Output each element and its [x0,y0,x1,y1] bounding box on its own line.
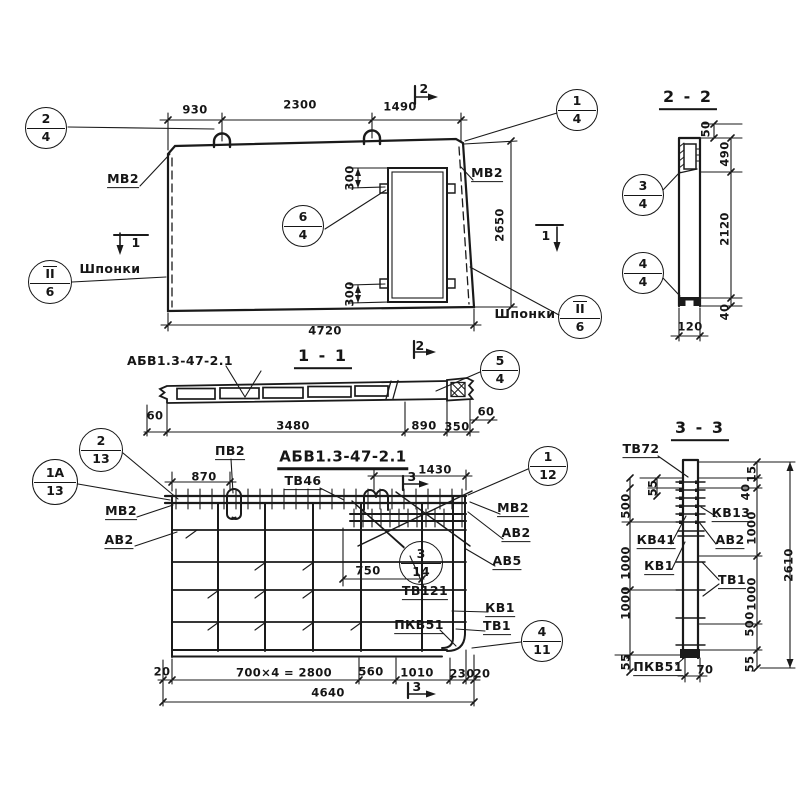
dim-55-bottom-right: 55 [744,656,757,673]
dim-1000-right-a: 1000 [746,511,759,545]
callout-1a-13: 1А13 [32,459,78,505]
callout-top: II [573,301,586,316]
dim-500-right: 500 [744,611,757,636]
callout-bottom: 14 [412,566,429,579]
dim-750: 750 [355,565,380,578]
dim-40-right: 40 [740,484,753,501]
section-mark-2-side: 2 [415,339,424,353]
dim-2120: 2120 [719,212,732,246]
dim-60-right: 60 [478,406,495,419]
label-panel-mark: АБВ1.3-47-2.1 [127,354,233,368]
callout-top: 3 [639,180,648,193]
label-pv2: ПВ2 [215,444,245,460]
callout-bottom: 12 [539,469,556,482]
callout-bottom: 4 [299,229,308,242]
section-mark-1-right: 1 [541,229,550,243]
callout-top: 1А [46,467,64,480]
label-shponki-left: Шпонки [80,262,141,276]
callout-bottom: 4 [639,198,648,211]
section-mark-2-top: 2 [419,82,428,96]
callout-top: 4 [639,258,648,271]
dim-490: 490 [719,141,732,166]
callout-2-4: 24 [25,107,67,149]
dim-1000-right-b: 1000 [746,577,759,611]
callout-bottom: 11 [533,644,550,657]
title-rebar-plan: АБВ1.3-47-2.1 [277,448,408,470]
dim-20-right: 20 [474,668,491,681]
blueprint-canvas: 930 2300 1490 2 МВ2 МВ2 Шпонки Шпонки 1 … [0,0,800,800]
callout-top: 6 [299,211,308,224]
callout-1-4: 14 [556,89,598,131]
label-tv1-rebar: ТВ1 [483,619,511,635]
dim-930: 930 [182,104,207,117]
dim-500-left: 500 [620,493,633,518]
dim-4640: 4640 [311,687,345,700]
callout-3-14: 314 [399,541,443,585]
callout-bottom: 4 [573,113,582,126]
label-shponki-right: Шпонки [495,307,556,321]
label-kv41: КВ41 [637,533,676,549]
dim-1010: 1010 [400,667,434,680]
dim-55-top-left: 55 [647,480,660,497]
callout-bottom: 13 [46,485,63,498]
title-section-1-1: 1 - 1 [294,347,352,369]
callout-4-4: 44 [622,252,664,294]
dim-1490: 1490 [383,101,417,114]
dim-560: 560 [358,666,383,679]
title-section-2-2: 2 - 2 [659,88,717,110]
callout-6-4: 64 [282,205,324,247]
callout-3-4: 34 [622,174,664,216]
callout-ii-6-right: II6 [558,295,602,339]
label-av5: АВ5 [492,554,521,570]
label-mv2-rebar-left: МВ2 [105,504,137,520]
dim-60-left: 60 [147,410,164,423]
label-kv1-rebar: КВ1 [485,601,515,617]
section-3-3-lines [615,456,795,682]
label-av2-33: АВ2 [715,533,744,549]
label-tv121: ТВ121 [402,584,448,600]
dim-70: 70 [697,664,714,677]
callout-top: 2 [42,113,51,126]
dim-1000-left-b: 1000 [620,586,633,620]
label-tv1-33: ТВ1 [718,573,746,589]
dim-50: 50 [700,121,713,138]
callout-top: 3 [417,548,426,561]
dim-55-bottom-left: 55 [620,654,633,671]
callout-top: 2 [97,435,106,448]
dim-2650: 2650 [494,208,507,242]
callout-4-11: 411 [521,620,563,662]
callout-bottom: 4 [496,373,505,386]
dim-1000-left-a: 1000 [620,546,633,580]
label-pkv51-rebar: ПКВ51 [394,618,444,634]
callout-bottom: 6 [576,321,585,334]
dim-870: 870 [191,471,216,484]
callout-bottom: 4 [639,276,648,289]
callout-bottom: 6 [46,286,55,299]
dim-350: 350 [444,421,469,434]
callout-bottom: 13 [92,453,109,466]
callout-top: II [43,266,56,281]
label-av2-rebar-right: АВ2 [501,526,530,542]
label-pkv51-33: ПКВ51 [633,660,683,676]
dim-15-right: 15 [746,466,759,483]
callout-top: 4 [538,626,547,639]
dim-300-top: 300 [344,165,357,190]
callout-top: 5 [496,355,505,368]
dim-2300: 2300 [283,99,317,112]
label-tv46: ТВ46 [284,474,321,490]
label-kv1-33: КВ1 [644,559,674,575]
dim-230: 230 [449,668,474,681]
dim-3480: 3480 [276,420,310,433]
dim-700x4: 700×4 = 2800 [236,667,332,680]
section-mark-1-left: 1 [131,236,140,250]
callout-bottom: 4 [42,131,51,144]
label-mv2-rebar-right: МВ2 [497,501,529,517]
label-mv2-plan-left: МВ2 [107,172,139,188]
callout-top: 1 [544,451,553,464]
dim-300-bottom: 300 [344,281,357,306]
dim-1430: 1430 [418,464,452,477]
dim-2610-total: 2610 [783,548,796,582]
label-mv2-plan-right: МВ2 [471,166,503,182]
dim-890: 890 [411,420,436,433]
drawing-linework [0,0,800,800]
dim-40: 40 [719,304,732,321]
label-tv72: ТВ72 [622,442,659,458]
callout-top: 1 [573,95,582,108]
callout-1-12: 112 [528,446,568,486]
callout-ii-6-left: II6 [28,260,72,304]
dim-20-left: 20 [154,666,171,679]
callout-2-13: 213 [79,428,123,472]
dim-4720: 4720 [308,325,342,338]
callout-5-4: 54 [480,350,520,390]
label-av2-rebar-left: АВ2 [104,533,133,549]
title-section-3-3: 3 - 3 [671,419,729,441]
dim-120: 120 [677,321,702,334]
section-mark-3-bottom: 3 [412,680,421,694]
section-mark-3-top: 3 [407,470,416,484]
